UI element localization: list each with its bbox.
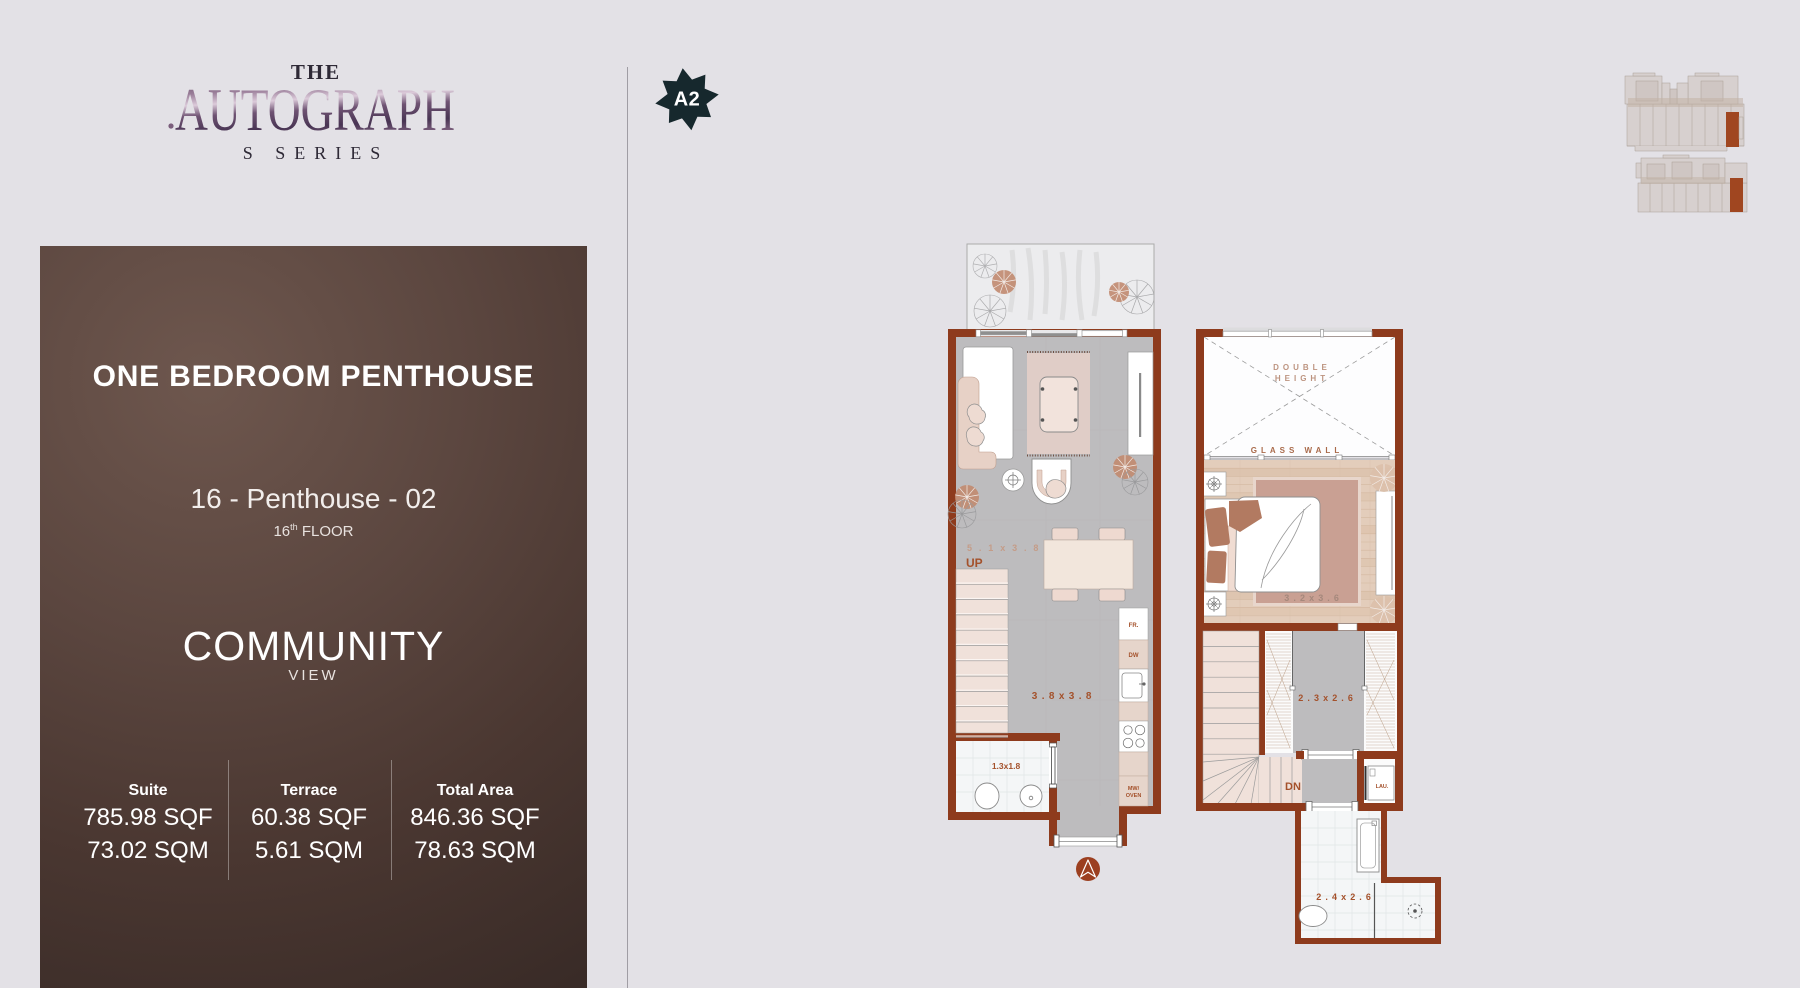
svg-text:UP: UP [966, 556, 983, 570]
svg-text:2 . 3 x 2 . 6: 2 . 3 x 2 . 6 [1298, 693, 1353, 703]
svg-text:1.3x1.8: 1.3x1.8 [992, 761, 1021, 771]
svg-text:AUTOGRAPH: AUTOGRAPH [175, 77, 455, 143]
svg-text:OVEN: OVEN [1126, 793, 1142, 799]
svg-text:2 . 4 x 2 . 6: 2 . 4 x 2 . 6 [1316, 892, 1371, 902]
svg-text:DOUBLE: DOUBLE [1273, 363, 1331, 372]
svg-text:3 . 2 x 3 . 6: 3 . 2 x 3 . 6 [1284, 593, 1339, 603]
svg-text:LAU.: LAU. [1376, 784, 1389, 790]
svg-text:DN: DN [1285, 781, 1301, 793]
svg-text:GLASS WALL: GLASS WALL [1251, 446, 1343, 455]
svg-text:A2: A2 [674, 89, 701, 111]
svg-text:5 . 1 x 3 . 8: 5 . 1 x 3 . 8 [967, 543, 1041, 553]
svg-text:3 . 8 x 3 . 8: 3 . 8 x 3 . 8 [1032, 691, 1092, 702]
svg-text:DW: DW [1129, 653, 1139, 659]
svg-text:FR.: FR. [1129, 623, 1139, 629]
svg-text:HEIGHT: HEIGHT [1275, 374, 1329, 383]
svg-text:MW/: MW/ [1128, 786, 1140, 792]
svg-text:S SERIES: S SERIES [243, 143, 390, 163]
